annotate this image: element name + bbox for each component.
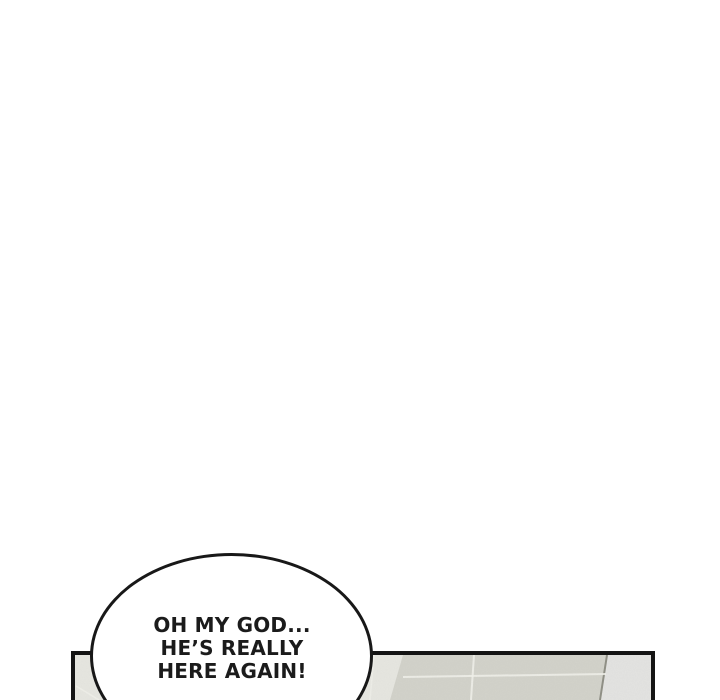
dialogue-line: HERE AGAIN!: [101, 660, 363, 683]
dialogue-text: OH MY GOD... HE’S REALLY HERE AGAIN!: [101, 614, 363, 683]
comic-page: OH MY GOD... HE’S REALLY HERE AGAIN!: [0, 0, 720, 700]
dialogue-line: HE’S REALLY: [101, 637, 363, 660]
dialogue-line: OH MY GOD...: [101, 614, 363, 637]
